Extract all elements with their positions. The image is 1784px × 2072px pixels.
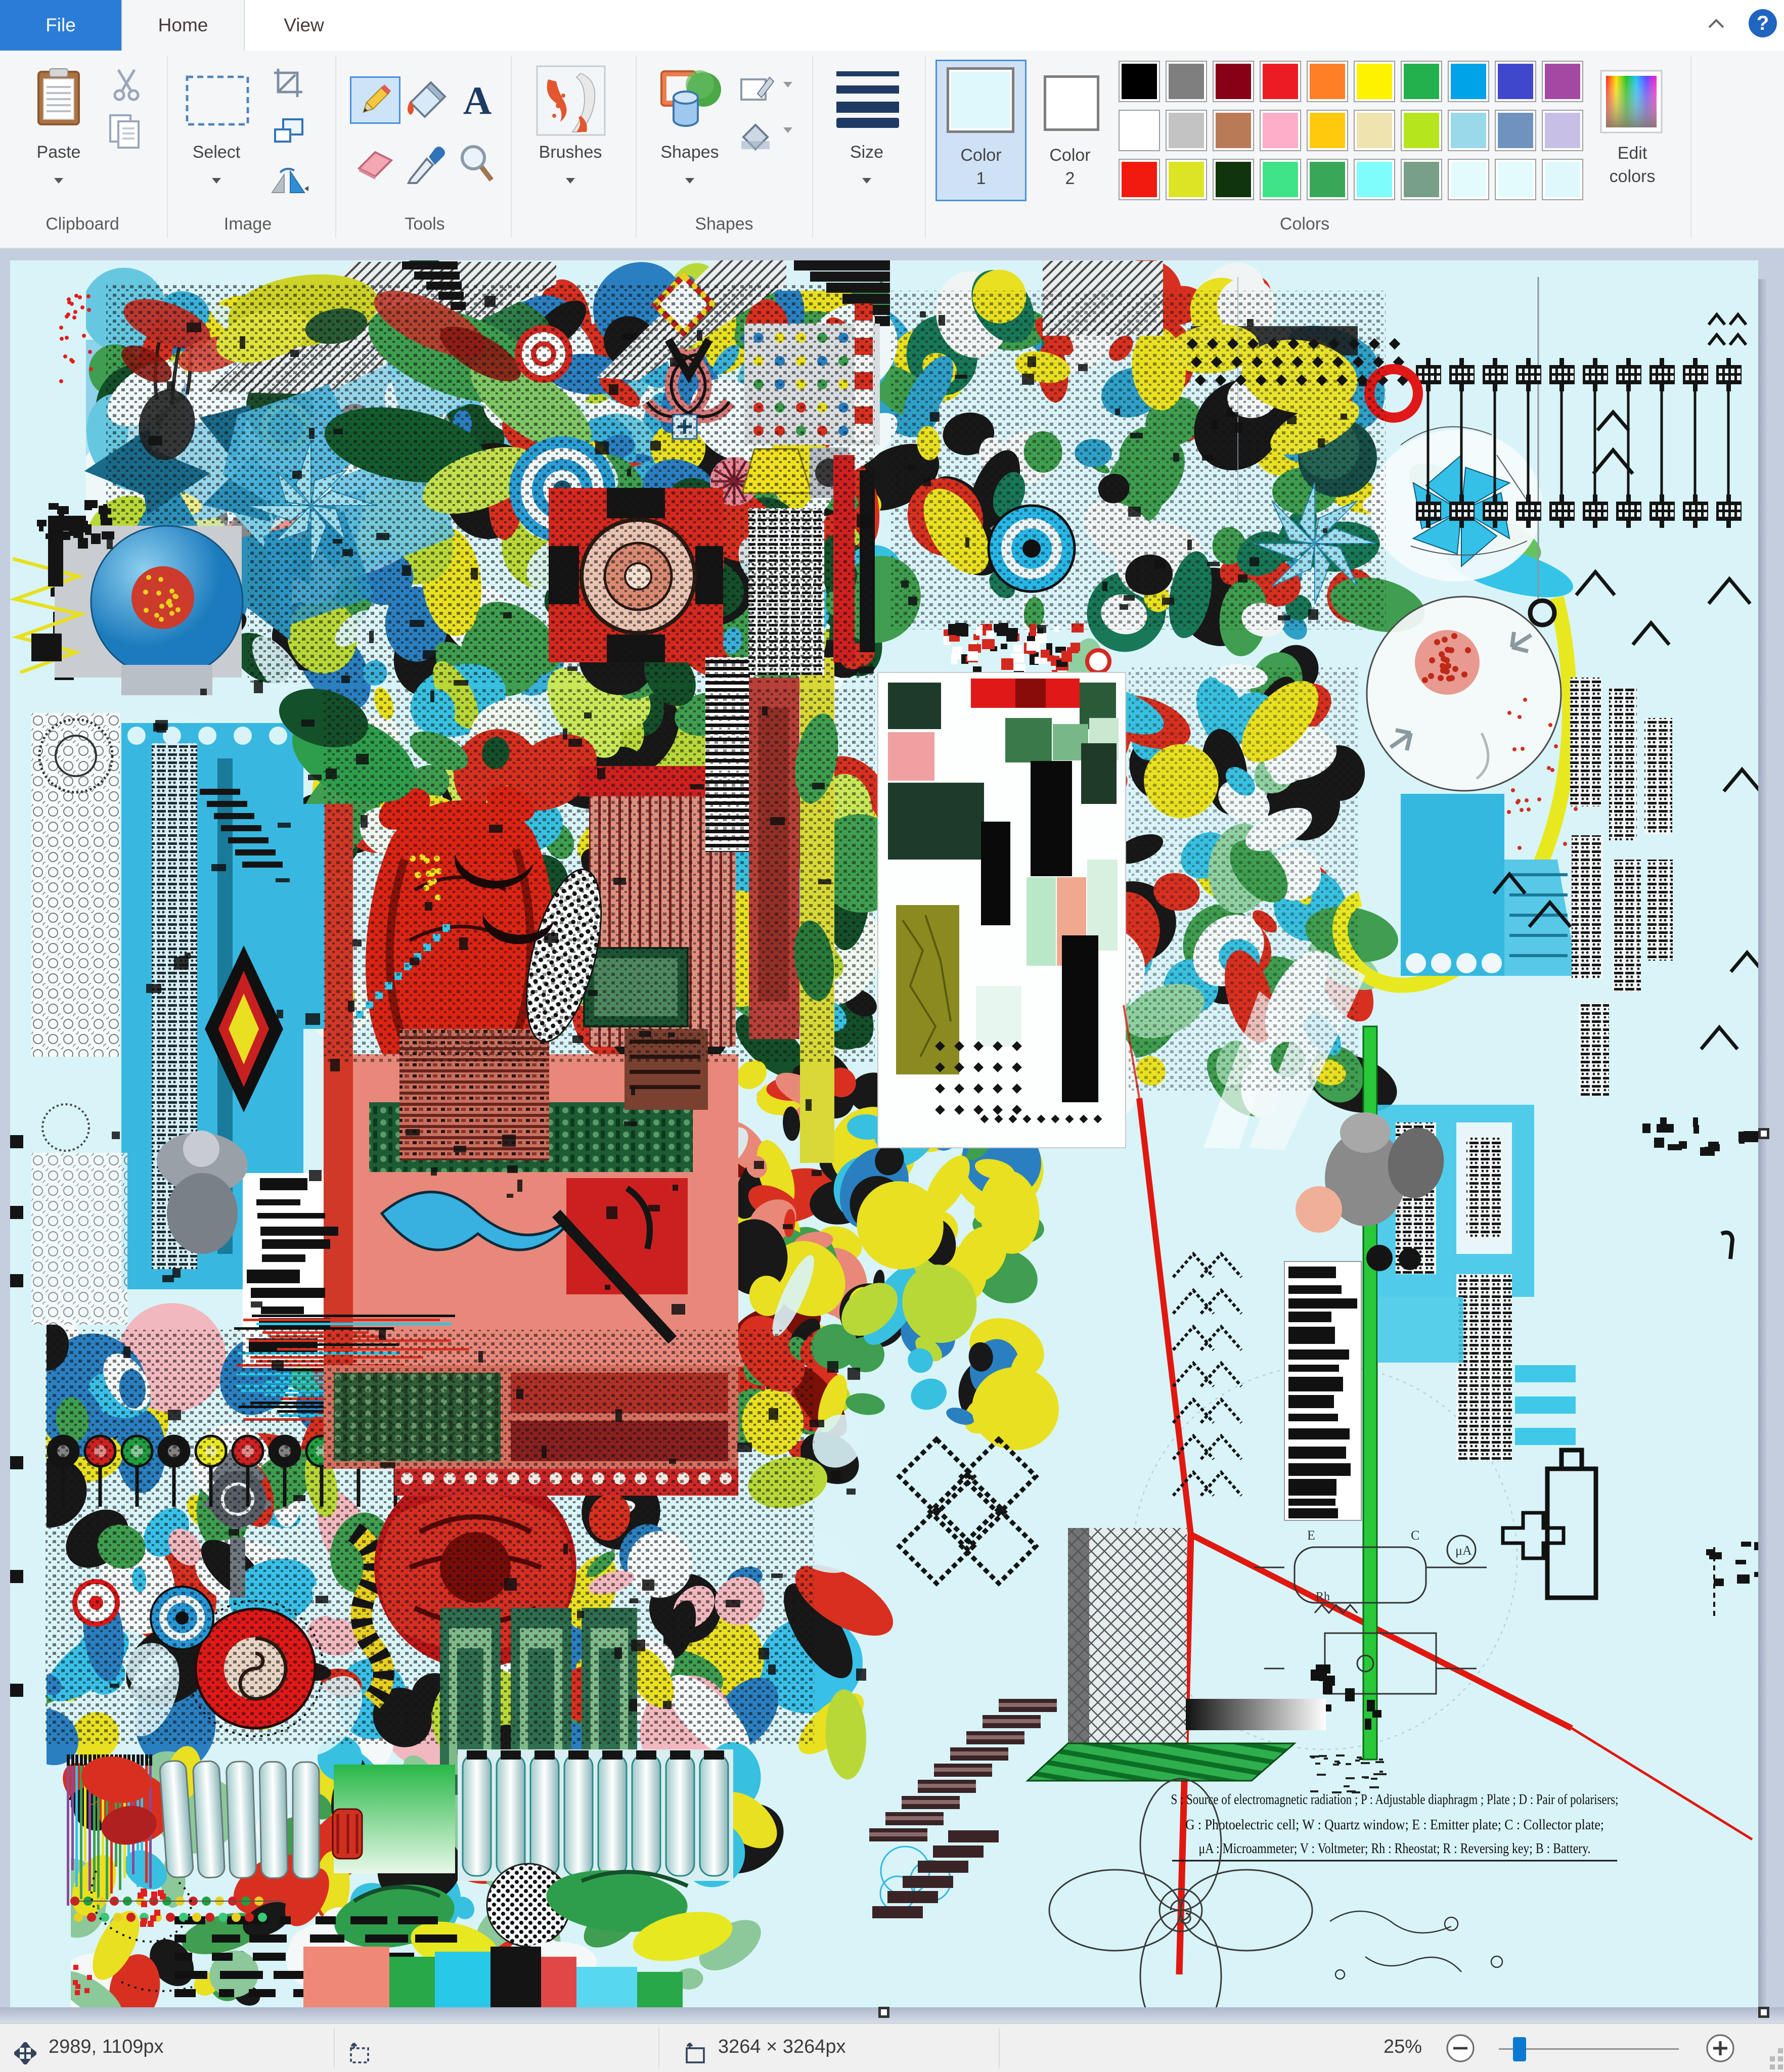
svg-text:S : Source of electromagnetic: S : Source of electromagnetic radiation … bbox=[1171, 1792, 1619, 1808]
svg-text:Rh: Rh bbox=[1316, 1590, 1330, 1603]
svg-text:μA: μA bbox=[1455, 1543, 1472, 1558]
svg-text:μA : Microammeter; V : Voltmet: μA : Microammeter; V : Voltmeter; Rh : R… bbox=[1199, 1841, 1591, 1857]
svg-text:E: E bbox=[1307, 1528, 1315, 1543]
svg-text:G : Photoelectric cell; W : Qu: G : Photoelectric cell; W : Quartz windo… bbox=[1185, 1817, 1604, 1833]
svg-text:C: C bbox=[1411, 1528, 1419, 1543]
